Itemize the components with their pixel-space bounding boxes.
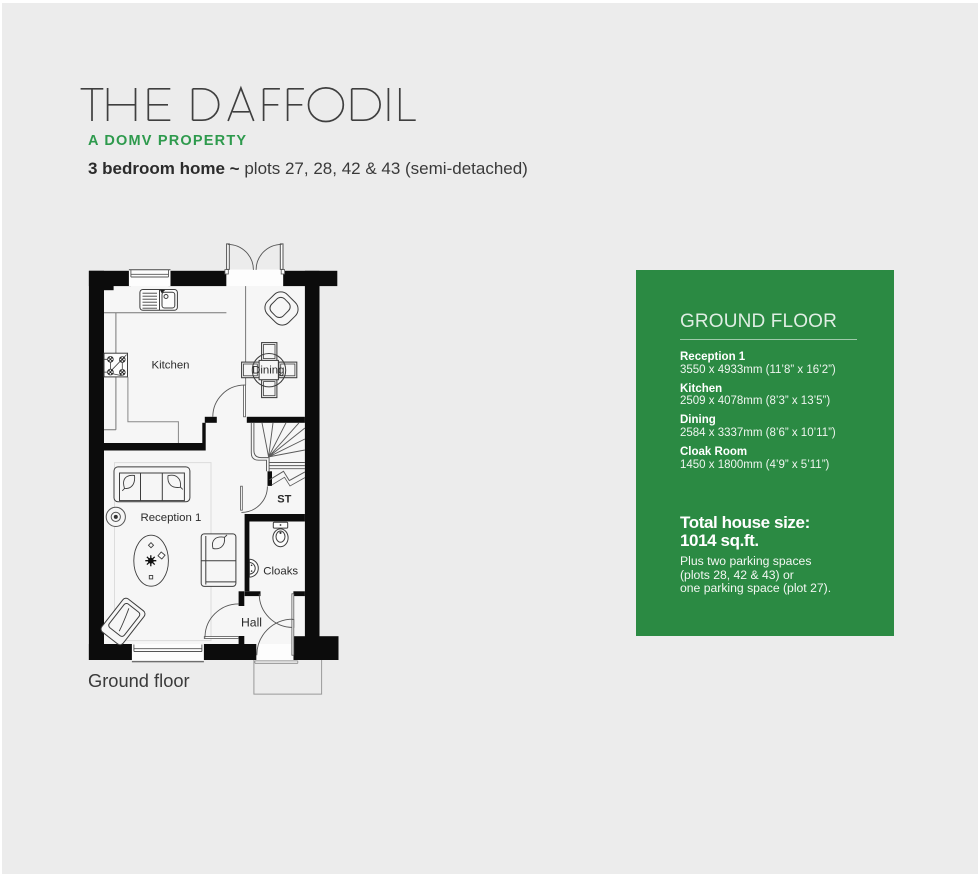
svg-text:ST: ST: [277, 493, 291, 505]
svg-text:Kitchen: Kitchen: [152, 359, 190, 371]
svg-text:Reception 1: Reception 1: [141, 512, 202, 524]
svg-text:Hall: Hall: [241, 615, 262, 629]
svg-text:Dining: Dining: [252, 365, 284, 377]
svg-text:Cloaks: Cloaks: [263, 566, 298, 578]
